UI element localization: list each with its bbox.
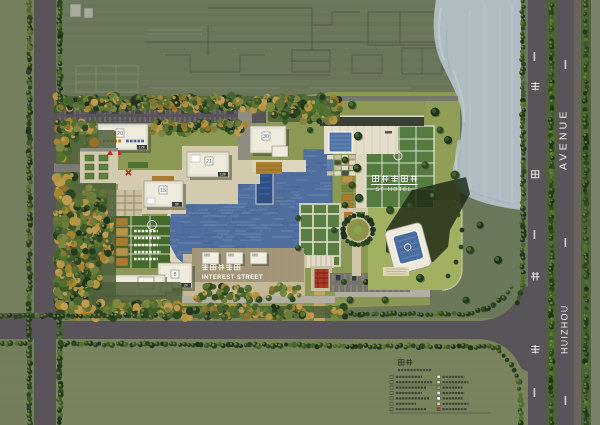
svg-text:20: 20 [117, 131, 123, 137]
svg-text:ST·HOTEL: ST·HOTEL [376, 187, 413, 193]
svg-text:INTEREST STREET: INTEREST STREET [202, 275, 263, 281]
svg-text:21: 21 [206, 159, 212, 165]
svg-text:15: 15 [160, 188, 166, 194]
svg-text:30: 30 [263, 134, 269, 140]
svg-text:8: 8 [173, 272, 176, 278]
svg-text:HUIZHOU: HUIZHOU [560, 305, 570, 354]
svg-text:12F: 12F [220, 173, 227, 177]
svg-text:17F: 17F [139, 146, 146, 150]
svg-text:AVENUE: AVENUE [558, 108, 570, 170]
